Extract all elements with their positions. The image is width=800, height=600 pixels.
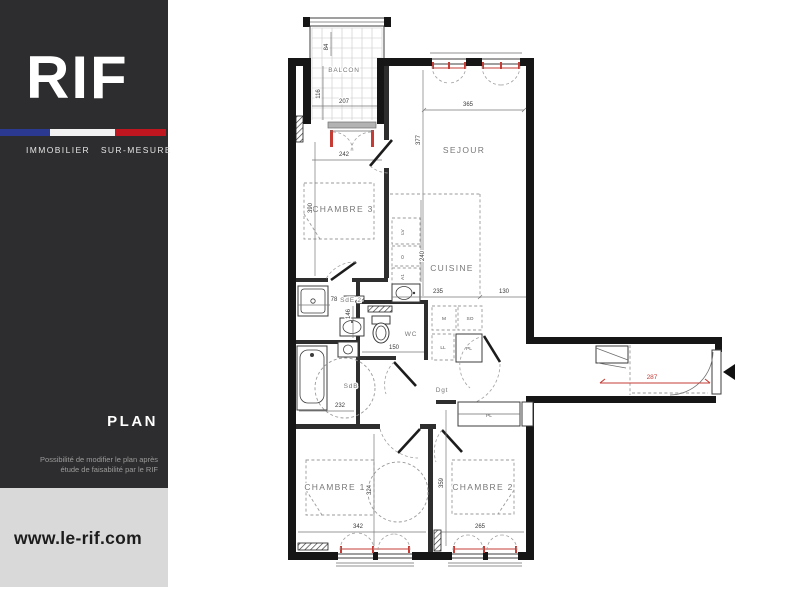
disclaimer-line-1: Possibilité de modifier le plan après — [40, 455, 158, 465]
room-sde2: 78 SdE 2 146 — [298, 286, 364, 338]
flag-white — [50, 129, 115, 136]
balcony-railing — [303, 17, 391, 27]
flag-blue — [0, 129, 50, 136]
label-chambre3: CHAMBRE 3 — [312, 204, 373, 214]
radiator-2 — [298, 543, 328, 550]
dim-sejour-height: 377 — [416, 134, 422, 145]
label-micro: M — [442, 316, 446, 322]
kitchen-sink — [392, 284, 420, 302]
label-chambre2: CHAMBRE 2 — [452, 482, 513, 492]
dim-chambre3-height: 390 — [308, 202, 314, 213]
sejour-windows — [430, 53, 522, 85]
label-chambre1: CHAMBRE 1 — [304, 482, 365, 492]
disclaimer-line-2: étude de faisabilité par le RIF — [40, 465, 158, 475]
website-link[interactable]: www.le-rif.com — [14, 528, 142, 549]
dim-chambre1-height: 324 — [367, 484, 373, 495]
bathtub — [297, 346, 327, 410]
placards: PL — [458, 402, 533, 426]
dim-chambre2-height: 359 — [439, 477, 445, 488]
dim-cuisine-width: 235 — [433, 289, 444, 295]
label-oven: O — [400, 255, 406, 259]
website-band: www.le-rif.com — [0, 488, 168, 587]
label-so: SO — [467, 316, 474, 322]
label-sejour: SEJOUR — [443, 145, 485, 155]
flag-bar — [0, 129, 166, 136]
radiator — [296, 116, 303, 142]
label-sdb: SdB — [344, 383, 359, 390]
entry-corridor: 287 — [596, 345, 735, 395]
dim-sejour-width: 365 — [463, 102, 474, 108]
brand-tagline: IMMOBILIER SUR-MESURE — [26, 145, 172, 155]
room-sdb: SdB 232 — [297, 342, 375, 418]
label-pl-small: PL — [466, 346, 472, 352]
label-balcon: BALCON — [328, 67, 360, 74]
toilet — [372, 316, 390, 343]
dim-chambre3-door: 242 — [339, 152, 350, 158]
washer-unit — [338, 342, 358, 357]
section-title: PLAN — [107, 413, 158, 430]
dim-sde2-height: 146 — [346, 308, 352, 319]
disclaimer-note: Possibilité de modifier le plan après ét… — [40, 455, 158, 474]
label-ll: LL — [440, 345, 446, 351]
label-dgt: Dgt — [436, 387, 449, 394]
room-dgt: Dgt — [436, 364, 500, 406]
entrance-arrow — [723, 364, 735, 380]
dim-chambre2-width: 265 — [475, 524, 486, 530]
label-cuisine: CUISINE — [430, 263, 474, 273]
dim-entry-width: 287 — [647, 374, 658, 381]
dim-cuisine-column: 240 — [420, 250, 426, 261]
radiator-3 — [434, 530, 441, 551]
dim-wc-width: 150 — [389, 345, 400, 351]
page: BALCON 84 116 207 — [0, 0, 800, 600]
dim-sdb-width: 232 — [335, 403, 346, 409]
room-cuisine: LV O A1 CUISINE 240 235 130 — [390, 194, 526, 302]
shower — [298, 286, 328, 316]
vent-grille-2 — [368, 306, 392, 312]
dim-balcon-upper: 84 — [324, 43, 330, 50]
room-chambre1: CHAMBRE 1 324 342 — [298, 429, 428, 550]
dim-cuisine-right: 130 — [499, 289, 510, 295]
flag-red — [115, 129, 166, 136]
label-lv: LV — [400, 228, 406, 234]
dim-balcon-depth: 116 — [316, 89, 322, 99]
storage-column: M SO LL PL — [432, 306, 500, 388]
dim-chambre1-width: 342 — [353, 524, 364, 530]
label-a1: A1 — [400, 274, 406, 280]
room-chambre2: CHAMBRE 2 359 265 — [434, 410, 524, 551]
dim-balcon-width: 207 — [339, 99, 350, 105]
brand-logo: RIF — [26, 48, 129, 108]
dim-sde2-width: 78 — [331, 297, 338, 303]
duct-box — [596, 346, 628, 368]
label-placard: PL — [486, 413, 492, 419]
washbasin-sde2 — [340, 318, 364, 336]
sidebar: RIF IMMOBILIER SUR-MESURE PLAN Possibili… — [0, 0, 168, 488]
balcony-door-sill — [328, 122, 376, 128]
label-sde2: SdE 2 — [340, 297, 362, 304]
room-wc: WC 150 — [362, 306, 424, 394]
label-wc: WC — [405, 331, 417, 338]
entrance-door — [670, 350, 721, 395]
room-chambre3: 242 CHAMBRE 3 390 — [296, 116, 392, 280]
